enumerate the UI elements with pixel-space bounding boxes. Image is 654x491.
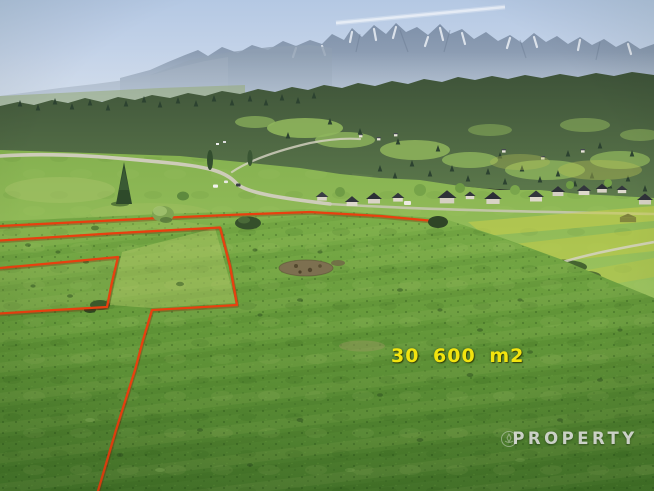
- agency-watermark: PROPERTY: [499, 429, 651, 448]
- aerial-photo-listing: 30 600 m2 PROPERTY: [0, 0, 654, 491]
- watermark-text: PROPERTY: [499, 429, 651, 448]
- photo-scene: [0, 0, 654, 491]
- plot-area-label: 30 600 m2: [391, 345, 524, 367]
- property-logo-emblem-icon: [499, 429, 519, 449]
